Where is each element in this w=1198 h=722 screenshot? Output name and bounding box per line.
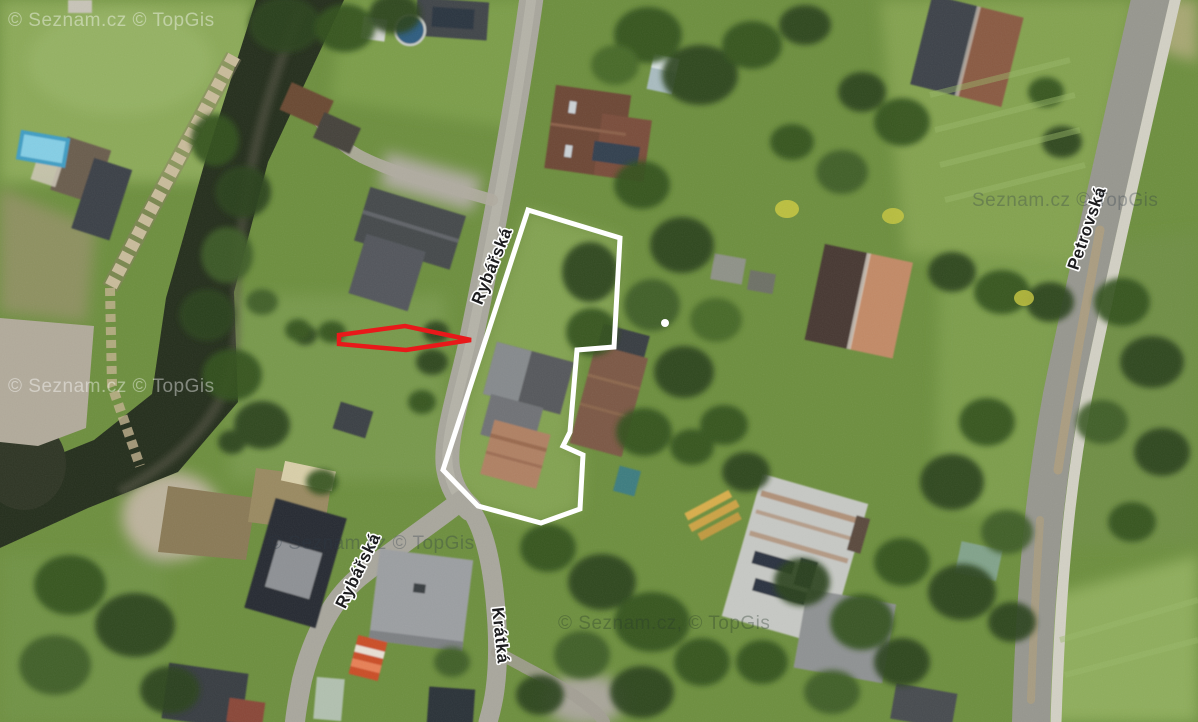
marker-dot bbox=[661, 319, 669, 327]
watermark-bottom-center: © Seznam.cz, © TopGis bbox=[558, 613, 770, 634]
aerial-photo: Rybářská Rybářská Krátká Petrovská © Sez… bbox=[0, 0, 1198, 722]
watermark-lower-left: © Seznam.cz © TopGis bbox=[268, 533, 475, 554]
watermark-mid-left: © Seznam.cz © TopGis bbox=[8, 376, 215, 397]
watermark-right: Seznam.cz © TopGis bbox=[972, 190, 1158, 211]
map-viewport[interactable]: Rybářská Rybářská Krátká Petrovská © Sez… bbox=[0, 0, 1198, 722]
watermark-top-left: © Seznam.cz © TopGis bbox=[8, 10, 215, 31]
